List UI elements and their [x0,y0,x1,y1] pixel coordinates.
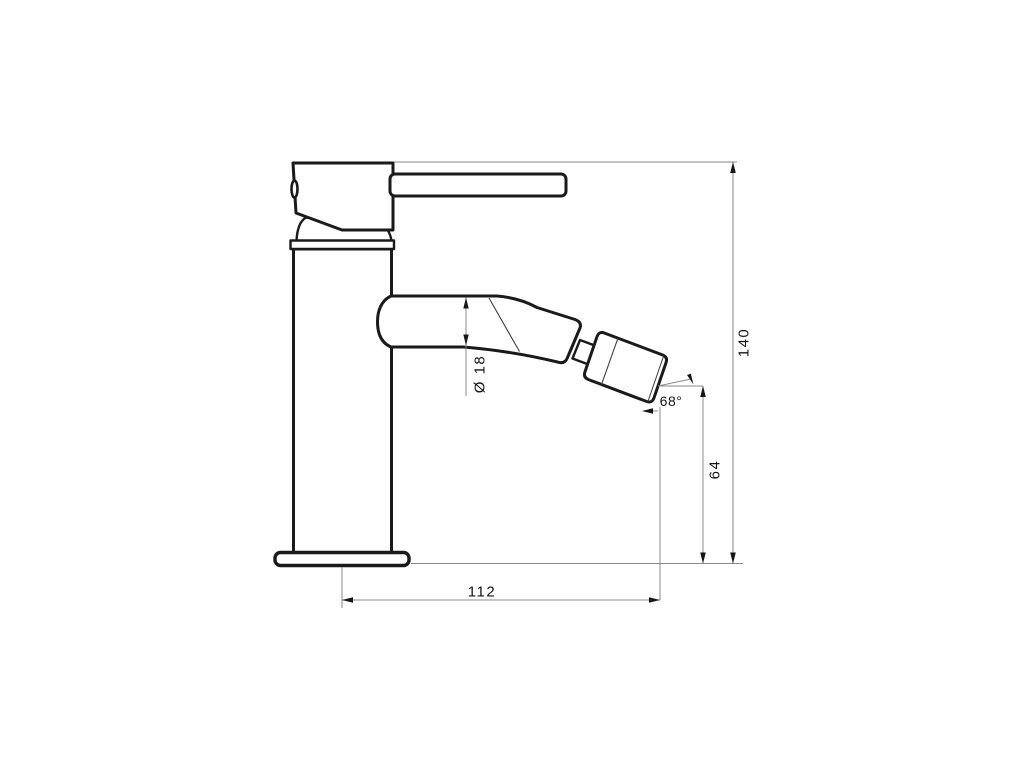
arrowhead [687,374,694,385]
arrowhead [730,553,736,564]
handle-pin [292,181,298,198]
arrowhead [730,162,736,173]
label-overall-height: 140 [736,328,753,358]
dim-overall-height: 140 [394,162,753,564]
body-column [294,249,392,553]
arrowhead [649,597,660,603]
arrowhead [342,597,353,603]
label-outlet-angle: 68° [660,393,683,409]
base-plate [275,553,409,566]
arrowhead [700,386,706,397]
dim-outlet-height: 64 [658,386,724,564]
handle-lever [390,174,566,196]
aerator [584,333,666,402]
label-spout-diameter: Ø 18 [472,355,489,394]
label-reach: 112 [468,584,496,601]
collar-ring [291,241,395,250]
drawing-page: 140 64 68° 112 [0,0,1024,768]
spout [378,296,581,363]
technical-drawing: 140 64 68° 112 [0,0,1024,768]
arrowhead [642,408,653,414]
arrowhead [700,553,706,564]
label-outlet-height: 64 [707,460,724,480]
